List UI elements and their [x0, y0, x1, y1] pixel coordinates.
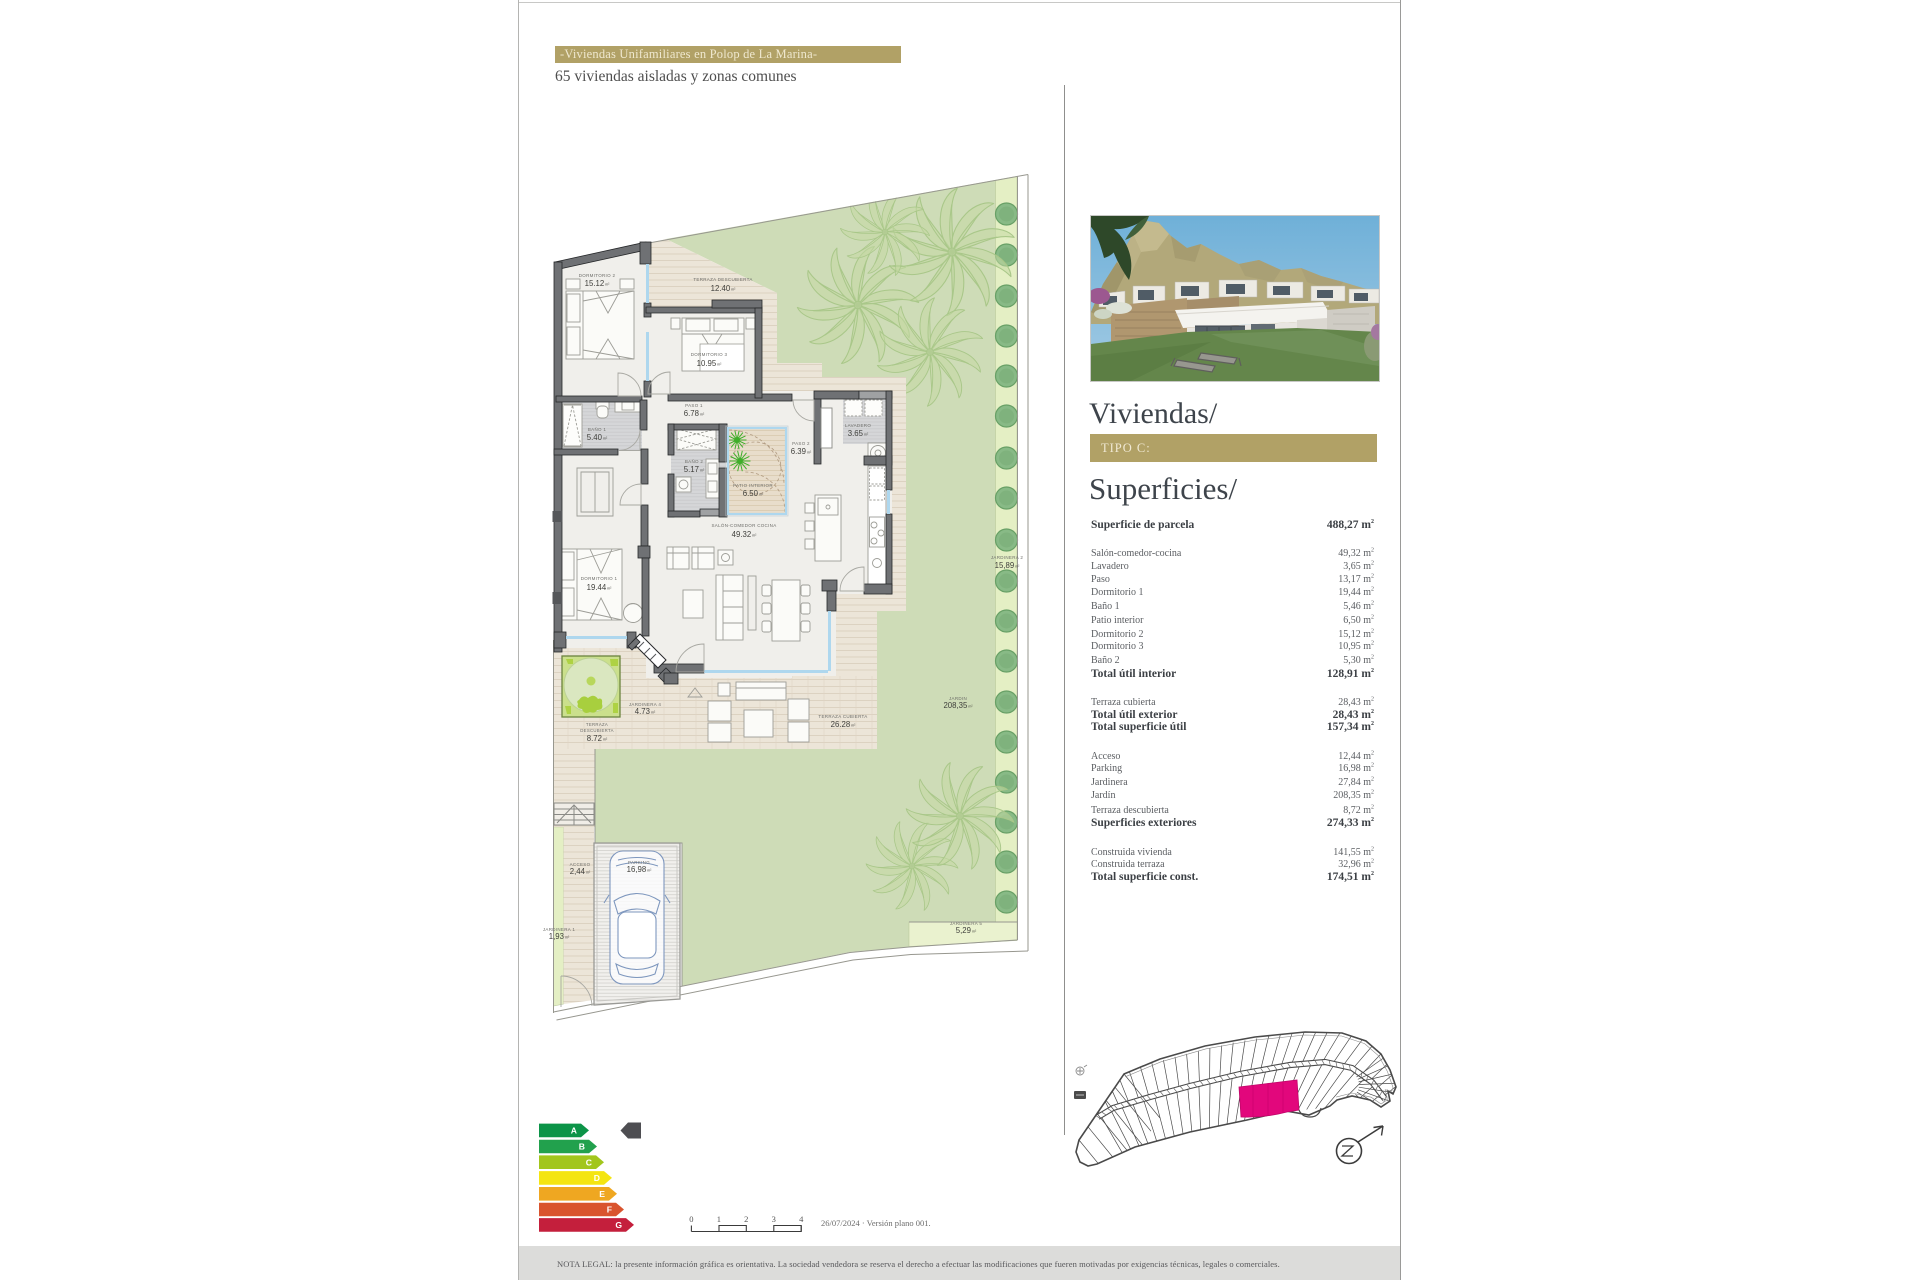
svg-text:PASO 1: PASO 1	[685, 403, 703, 408]
svg-text:E: E	[599, 1189, 605, 1199]
svg-text:A: A	[571, 1126, 577, 1136]
svg-text:0: 0	[689, 1214, 693, 1224]
svg-text:SALÓN-COMEDOR COCINA: SALÓN-COMEDOR COCINA	[711, 522, 776, 528]
svg-text:TERRAZA DESCUBIERTA: TERRAZA DESCUBIERTA	[693, 277, 752, 282]
svg-text:2: 2	[744, 1214, 748, 1224]
svg-text:D: D	[594, 1173, 600, 1183]
svg-text:TERRAZA: TERRAZA	[586, 722, 608, 727]
svg-text:DORMITORIO 3: DORMITORIO 3	[691, 352, 728, 357]
svg-text:DORMITORIO 1: DORMITORIO 1	[581, 576, 618, 581]
svg-text:F: F	[607, 1205, 612, 1215]
svg-text:PATIO INTERIOR: PATIO INTERIOR	[733, 483, 773, 488]
svg-text:B: B	[579, 1142, 585, 1152]
svg-text:BAÑO 2: BAÑO 2	[685, 458, 704, 464]
svg-text:3: 3	[772, 1214, 776, 1224]
svg-text:C: C	[586, 1157, 592, 1167]
svg-text:4: 4	[799, 1214, 804, 1224]
svg-text:DESCUBIERTA: DESCUBIERTA	[580, 728, 613, 733]
svg-text:LAVADERO: LAVADERO	[845, 423, 871, 428]
svg-text:JARDINERA 2: JARDINERA 2	[991, 555, 1024, 560]
svg-text:DORMITORIO 2: DORMITORIO 2	[579, 273, 616, 278]
svg-text:1: 1	[717, 1214, 721, 1224]
svg-text:G: G	[615, 1220, 622, 1230]
svg-text:BAÑO 1: BAÑO 1	[588, 426, 607, 432]
svg-text:TERRAZA CUBIERTA: TERRAZA CUBIERTA	[818, 714, 867, 719]
svg-text:PASO 2: PASO 2	[792, 441, 810, 446]
